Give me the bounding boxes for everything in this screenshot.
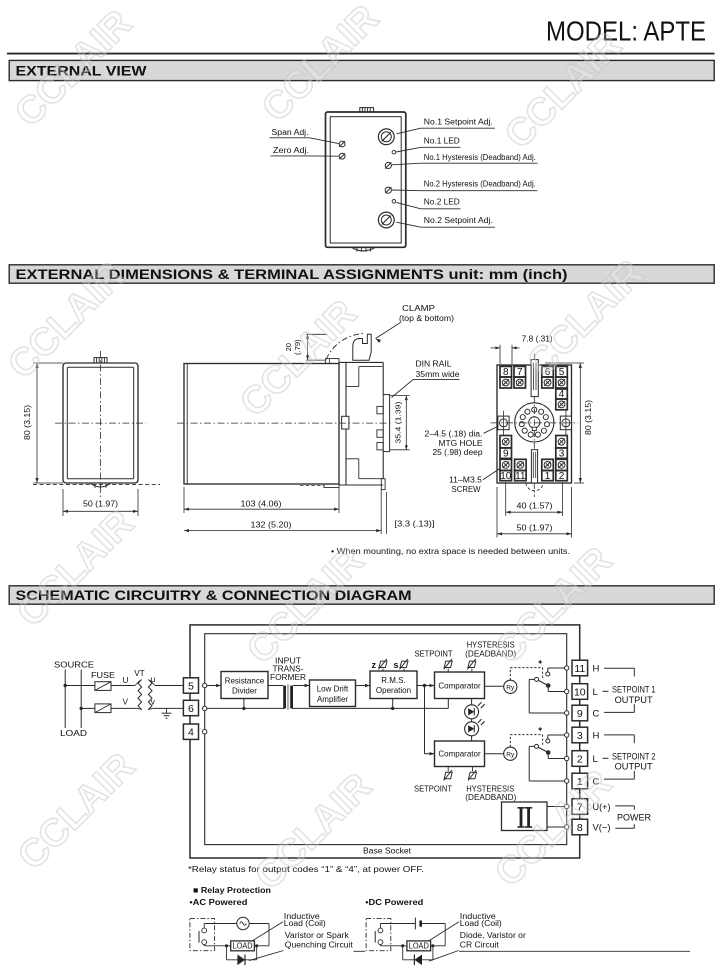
svg-text:Varistor or Spark: Varistor or Spark (285, 931, 350, 940)
svg-text:6: 6 (188, 703, 194, 715)
svg-text:CR Circuit: CR Circuit (460, 941, 500, 950)
svg-text:132 (5.20): 132 (5.20) (251, 520, 292, 529)
svg-text:80 (3.15): 80 (3.15) (23, 405, 32, 440)
svg-text:V: V (123, 698, 129, 707)
svg-text:Comparator: Comparator (438, 750, 481, 759)
svg-text:FUSE: FUSE (91, 670, 115, 680)
svg-text:Divider: Divider (232, 687, 257, 696)
svg-text:1: 1 (545, 471, 551, 482)
svg-text:Low Drift: Low Drift (317, 685, 349, 694)
svg-text:No.2 Setpoint Adj.: No.2 Setpoint Adj. (424, 216, 493, 225)
svg-text:80 (3.15): 80 (3.15) (584, 400, 593, 435)
svg-text:Comparator: Comparator (438, 681, 481, 690)
svg-text:40 (1.57): 40 (1.57) (517, 502, 553, 511)
svg-text:11–M3.5: 11–M3.5 (449, 476, 483, 485)
svg-text:C: C (593, 708, 600, 719)
svg-text:4: 4 (188, 727, 194, 739)
svg-text:■ Relay Protection: ■ Relay Protection (193, 885, 271, 895)
svg-text:Zero Adj.: Zero Adj. (273, 146, 309, 155)
svg-text:H: H (593, 730, 600, 741)
svg-text:No.1 Hysteresis (Deadband) Adj: No.1 Hysteresis (Deadband) Adj. (424, 153, 536, 162)
svg-text:LOAD: LOAD (60, 728, 87, 738)
svg-text:U: U (123, 676, 129, 685)
svg-text:Diode, Varistor or: Diode, Varistor or (460, 931, 526, 940)
svg-text:•AC Powered: •AC Powered (189, 897, 247, 907)
svg-text:35mm wide: 35mm wide (416, 370, 461, 379)
svg-text:9: 9 (577, 708, 583, 720)
svg-text:CCLAIR: CCLAIR (247, 765, 380, 898)
svg-text:No.1 LED: No.1 LED (424, 136, 460, 145)
svg-text:25 (.98) deep: 25 (.98) deep (433, 448, 484, 457)
svg-text:CCLAIR: CCLAIR (487, 539, 620, 672)
svg-text:11: 11 (574, 663, 585, 675)
svg-text:No.2 Hysteresis (Deadband) Adj: No.2 Hysteresis (Deadband) Adj. (424, 179, 536, 188)
svg-text:CCLAIR: CCLAIR (239, 539, 372, 672)
svg-text:10: 10 (574, 686, 586, 698)
svg-text:MODEL: APTE: MODEL: APTE (546, 16, 706, 47)
svg-text:5: 5 (188, 680, 194, 692)
svg-text:CCLAIR: CCLAIR (10, 745, 143, 878)
svg-text:2: 2 (559, 471, 565, 482)
svg-text:50 (1.97): 50 (1.97) (517, 524, 553, 533)
svg-text:SCREW: SCREW (452, 485, 481, 494)
svg-text:Span Adj.: Span Adj. (272, 128, 309, 137)
svg-text:R.M.S.: R.M.S. (381, 676, 405, 685)
svg-text:Load (Coil): Load (Coil) (460, 919, 502, 928)
svg-text:Ry: Ry (506, 684, 515, 691)
svg-text:No.2 LED: No.2 LED (424, 198, 460, 207)
svg-text:SOURCE: SOURCE (54, 659, 94, 669)
svg-text:(DEADBAND): (DEADBAND) (465, 793, 516, 802)
svg-text:• When mounting, no extra spac: • When mounting, no extra space is neede… (331, 547, 570, 556)
svg-text:z: z (372, 660, 377, 670)
svg-text:11: 11 (515, 471, 526, 482)
svg-text:Ry: Ry (506, 751, 515, 758)
svg-text:35.4 (1.39): 35.4 (1.39) (394, 401, 403, 444)
svg-text:H: H (593, 663, 600, 674)
svg-text:V(−): V(−) (593, 822, 611, 833)
svg-text:MTG HOLE: MTG HOLE (439, 439, 483, 448)
svg-text:L: L (593, 754, 598, 765)
svg-text:LOAD: LOAD (409, 942, 429, 951)
svg-text:Quenching Circuit: Quenching Circuit (285, 941, 354, 950)
svg-text:2: 2 (577, 753, 583, 765)
svg-text:2–4.5 (.18) dia.: 2–4.5 (.18) dia. (425, 430, 483, 439)
svg-text:Load (Coil): Load (Coil) (284, 919, 326, 928)
svg-text:LOAD: LOAD (233, 942, 253, 951)
svg-text:L: L (593, 687, 598, 698)
svg-text:DIN RAIL: DIN RAIL (416, 360, 453, 369)
svg-text:SETPOINT: SETPOINT (415, 649, 453, 658)
svg-text:CCLAIR: CCLAIR (9, 502, 142, 635)
svg-text:•DC Powered: •DC Powered (365, 897, 423, 907)
svg-text:Resistance: Resistance (225, 676, 265, 685)
svg-text:[3.3 (.13)]: [3.3 (.13)] (395, 520, 435, 529)
svg-text:Operation: Operation (376, 686, 411, 695)
svg-text:3: 3 (559, 448, 565, 459)
svg-text:VT: VT (134, 669, 144, 678)
svg-text:No.1 Setpoint Adj.: No.1 Setpoint Adj. (424, 117, 493, 126)
svg-text:OUTPUT: OUTPUT (615, 695, 653, 706)
svg-text:103 (4.06): 103 (4.06) (241, 499, 282, 508)
svg-text:s: s (394, 660, 399, 670)
svg-text:POWER: POWER (617, 812, 651, 823)
svg-text:10: 10 (500, 471, 512, 482)
svg-text:SETPOINT: SETPOINT (414, 785, 452, 794)
svg-text:(top & bottom): (top & bottom) (399, 314, 454, 323)
svg-text:OUTPUT: OUTPUT (615, 762, 653, 773)
svg-text:FORMER: FORMER (270, 673, 306, 682)
svg-text:Amplifier: Amplifier (317, 695, 348, 704)
svg-text:3: 3 (577, 730, 583, 742)
svg-text:9: 9 (503, 448, 509, 459)
svg-text:CLAMP: CLAMP (402, 304, 435, 313)
svg-text:CCLAIR: CCLAIR (232, 292, 365, 425)
svg-text:Base Socket: Base Socket (363, 847, 412, 856)
